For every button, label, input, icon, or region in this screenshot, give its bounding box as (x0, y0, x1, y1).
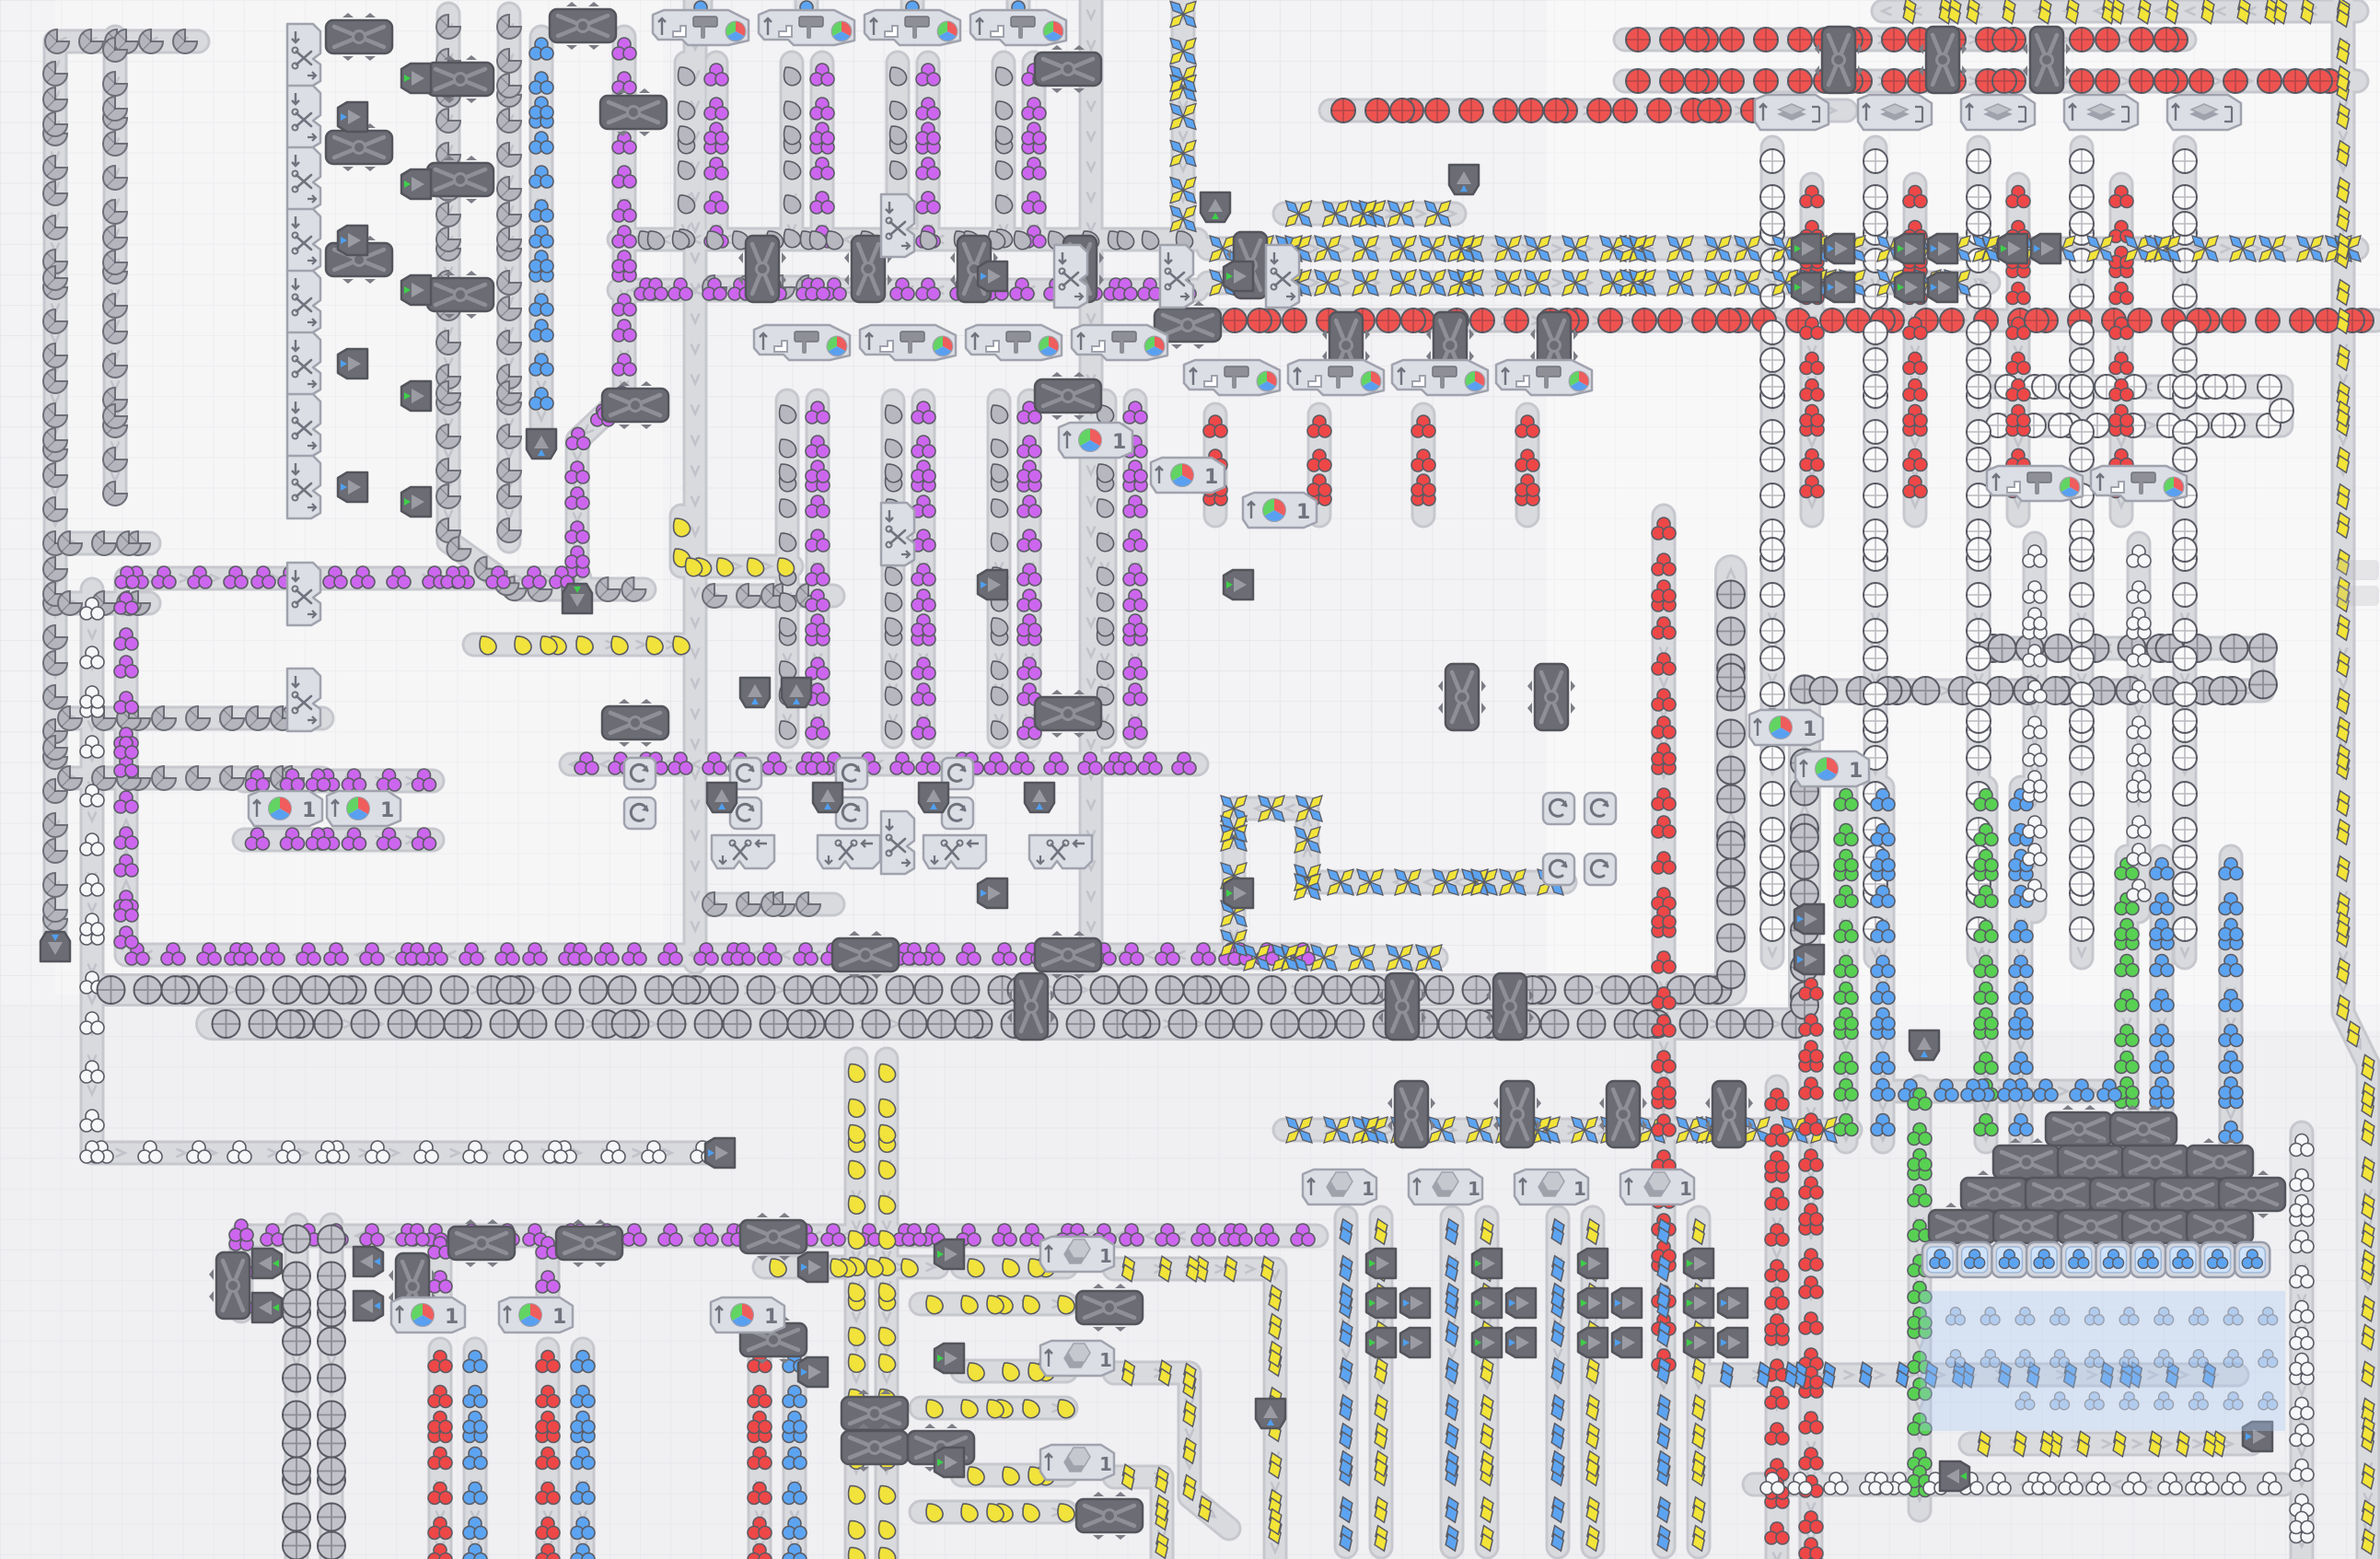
shape-item (2203, 375, 2227, 399)
factory-viewport[interactable]: 11 (0, 0, 2380, 1559)
cutter-building[interactable] (287, 456, 320, 518)
tunnel-building[interactable] (935, 1239, 964, 1269)
shape-item (1863, 320, 1887, 344)
stacker-building[interactable] (2167, 95, 2241, 130)
balancer-building[interactable] (326, 13, 392, 61)
balancer-building[interactable] (550, 2, 616, 50)
tunnel-building[interactable] (1506, 1328, 1536, 1357)
shape-item (1717, 961, 1745, 989)
cutter-building[interactable] (287, 86, 320, 148)
shape-item (1091, 976, 1119, 1004)
tunnel-building[interactable] (1825, 234, 1854, 263)
shape-item (2222, 308, 2246, 332)
balancer-building[interactable] (1438, 664, 1486, 730)
tunnel-building[interactable] (1684, 1249, 1713, 1278)
shape-item (283, 1365, 310, 1392)
cutter-building[interactable] (818, 835, 880, 868)
tunnel-building[interactable] (1224, 570, 1253, 599)
tunnel-building[interactable] (707, 783, 737, 812)
shape-item (283, 1402, 310, 1429)
shape-item (1788, 28, 1812, 52)
shape-item (1156, 976, 1184, 1004)
painter-building[interactable] (653, 10, 749, 45)
color-mixer-building[interactable] (499, 1297, 573, 1332)
tunnel-building[interactable] (1366, 1288, 1396, 1318)
shape-item (283, 1262, 310, 1290)
balancer-building[interactable] (1599, 1081, 1647, 1147)
shape-item (2173, 746, 2197, 770)
tunnel-building[interactable] (252, 1293, 282, 1322)
balancer-building[interactable] (1035, 931, 1101, 979)
shape-item (1222, 976, 1249, 1004)
stacker-building[interactable] (1040, 1341, 1114, 1376)
balancer-building[interactable] (1035, 372, 1101, 420)
painter-building[interactable] (860, 325, 956, 360)
painter-building[interactable] (1392, 360, 1488, 395)
shape-item (1967, 212, 1991, 236)
tunnel-building[interactable] (1794, 945, 1824, 974)
shape-item (2070, 185, 2094, 209)
tunnel-building[interactable] (935, 1448, 964, 1477)
cutter-building[interactable] (287, 147, 320, 210)
balancer-building[interactable] (1705, 1081, 1753, 1147)
shape-item (376, 976, 403, 1004)
tunnel-building[interactable] (1472, 1249, 1502, 1278)
tunnel-building[interactable] (1792, 234, 1821, 263)
shape-item (1169, 1010, 1197, 1038)
tunnel-building[interactable] (338, 226, 367, 255)
shape-item (695, 1010, 723, 1038)
cutter-building[interactable] (712, 835, 774, 868)
tunnel-building[interactable] (41, 932, 70, 961)
shape-item (1882, 69, 1906, 93)
tunnel-building[interactable] (1684, 1288, 1713, 1318)
shape-item (1324, 976, 1352, 1004)
shape-item (2173, 348, 2197, 372)
color-mixer-building[interactable] (711, 1297, 784, 1332)
shape-item (956, 1010, 983, 1038)
stacker-building[interactable] (1040, 1237, 1114, 1272)
balancer-building[interactable] (1815, 27, 1863, 93)
stacker-building[interactable] (1303, 1169, 1376, 1204)
shape-item (1337, 1010, 1364, 1038)
tunnel-building[interactable] (1612, 1328, 1642, 1357)
shape-item (1184, 976, 1212, 1004)
shape-item (2070, 69, 2094, 93)
rotator-building[interactable] (1543, 793, 1574, 824)
stacker-building[interactable] (1755, 95, 1829, 130)
tunnel-building[interactable] (1224, 878, 1253, 908)
tunnel-building[interactable] (1825, 273, 1854, 302)
tunnel-building[interactable] (1998, 234, 2027, 263)
balancer-building[interactable] (600, 88, 667, 136)
shape-item (497, 976, 525, 1004)
shape-item (417, 1010, 445, 1038)
balancer-building[interactable] (842, 1424, 908, 1472)
color-mixer-building[interactable] (1151, 458, 1225, 493)
balancer-building[interactable] (427, 271, 493, 319)
color-mixer-building[interactable] (249, 791, 322, 826)
shape-item (2070, 448, 2094, 471)
tunnel-building[interactable] (1025, 783, 1054, 812)
tunnel-building[interactable] (978, 570, 1007, 599)
shape-item (1660, 69, 1684, 93)
cutter-building[interactable] (287, 271, 320, 333)
tunnel-building[interactable] (1718, 1288, 1747, 1318)
shape-item (1967, 448, 1991, 471)
shape-item (404, 976, 432, 1004)
shape-item (2032, 375, 2056, 399)
tunnel-building[interactable] (935, 1344, 964, 1373)
balancer-building[interactable] (1486, 973, 1534, 1040)
color-mixer-building[interactable] (1059, 423, 1132, 458)
tunnel-building[interactable] (705, 1138, 735, 1168)
shape-item (1863, 348, 1887, 372)
shape-item (2070, 583, 2094, 607)
shape-item (134, 976, 162, 1004)
ghost-building (2331, 586, 2379, 606)
shape-item (1271, 1010, 1299, 1038)
balancer-building[interactable] (1378, 973, 1426, 1040)
painter-building[interactable] (759, 10, 854, 45)
balancer-building[interactable] (1493, 1081, 1541, 1147)
shape-item (1120, 976, 1147, 1004)
shape-item (788, 1010, 816, 1038)
painter-building[interactable] (966, 325, 1062, 360)
shape-item (1967, 149, 1991, 173)
tunnel-building[interactable] (919, 783, 948, 812)
color-mixer-building[interactable] (327, 791, 401, 826)
balancer-building[interactable] (556, 1219, 622, 1267)
tunnel-building[interactable] (354, 1291, 383, 1320)
shape-item (1717, 581, 1745, 609)
tunnel-building[interactable] (1578, 1328, 1608, 1357)
shape-item (2249, 671, 2277, 699)
painter-building[interactable] (1987, 466, 2083, 501)
shape-item (1439, 1010, 1467, 1038)
balancer-building[interactable] (209, 1252, 257, 1319)
shape-item (2070, 149, 2094, 173)
shape-item (1248, 308, 1271, 332)
balancer-building[interactable] (1919, 27, 1967, 93)
shape-item (1760, 320, 1784, 344)
tunnel-building[interactable] (401, 275, 431, 305)
tunnel-building[interactable] (338, 349, 367, 378)
tunnel-building[interactable] (563, 584, 592, 613)
tunnel-building[interactable] (527, 429, 556, 459)
shape-item (2154, 28, 2178, 52)
balancer-building[interactable] (1527, 664, 1575, 730)
tunnel-building[interactable] (1940, 1461, 1969, 1491)
shape-item (1863, 185, 1887, 209)
cutter-building[interactable] (287, 24, 320, 87)
tunnel-building[interactable] (813, 783, 842, 812)
tunnel-building[interactable] (978, 878, 1007, 908)
color-mixer-building[interactable] (1243, 493, 1317, 528)
rotator-building[interactable] (1585, 854, 1616, 885)
tunnel-building[interactable] (252, 1249, 282, 1278)
painter-building[interactable] (1072, 325, 1167, 360)
shape-item (748, 976, 775, 1004)
cutter-building[interactable] (287, 332, 320, 395)
balancer-building[interactable] (1035, 45, 1101, 93)
shape-item (724, 1010, 751, 1038)
shape-item (609, 976, 636, 1004)
tunnel-building[interactable] (401, 169, 431, 199)
shape-item (2173, 619, 2197, 643)
cutter-building[interactable] (923, 835, 986, 868)
rotator-building[interactable] (1585, 793, 1616, 824)
balancer-building[interactable] (602, 699, 668, 747)
tunnel-building[interactable] (1794, 904, 1824, 934)
shape-item (1054, 976, 1082, 1004)
painter-building[interactable] (1496, 360, 1592, 395)
tunnel-building[interactable] (1895, 234, 1924, 263)
shape-item (1283, 308, 1306, 332)
shape-item (302, 976, 330, 1004)
shape-item (1967, 709, 1991, 733)
shape-item (658, 1010, 686, 1038)
tunnel-building[interactable] (401, 381, 431, 411)
shape-item (162, 976, 190, 1004)
cutter-building[interactable] (287, 563, 320, 625)
tunnel-building[interactable] (1472, 1288, 1502, 1318)
tunnel-building[interactable] (1910, 1030, 1939, 1060)
shape-item (1746, 1010, 1773, 1038)
shape-item (2173, 818, 2197, 842)
shape-item (318, 1458, 345, 1485)
stacker-building[interactable] (1858, 95, 1932, 130)
shape-item (2173, 448, 2197, 471)
shape-item (1992, 69, 2016, 93)
shape-item (1760, 420, 1784, 444)
balancer-building[interactable] (1076, 1492, 1143, 1540)
color-mixer-building[interactable] (1749, 710, 1823, 745)
balancer-building[interactable] (740, 1213, 807, 1261)
stacker-building[interactable] (1040, 1445, 1114, 1480)
shape-item (1967, 285, 1991, 308)
shape-item (1863, 420, 1887, 444)
shape-item (1788, 69, 1812, 93)
shape-item (863, 1010, 890, 1038)
tunnel-building[interactable] (1612, 1288, 1642, 1318)
shape-item (1493, 99, 1517, 122)
tunnel-building[interactable] (1506, 1288, 1536, 1318)
shape-item (2130, 69, 2154, 93)
cutter-building[interactable] (287, 209, 320, 272)
shape-item (318, 1328, 345, 1355)
shape-item (2173, 320, 2197, 344)
tunnel-building[interactable] (1718, 1328, 1747, 1357)
tunnel-building[interactable] (1256, 1399, 1285, 1428)
shape-item (1206, 1010, 1234, 1038)
painter-building[interactable] (1184, 360, 1280, 395)
shape-item (1331, 99, 1355, 122)
shape-item (2212, 413, 2235, 437)
tunnel-building[interactable] (1578, 1249, 1608, 1278)
shape-item (1760, 646, 1784, 670)
balancer-building[interactable] (738, 236, 786, 302)
tunnel-building[interactable] (1684, 1328, 1713, 1357)
stacker-building[interactable] (1620, 1169, 1694, 1204)
cutter-building[interactable] (1266, 245, 1299, 308)
shape-item (1299, 1010, 1327, 1038)
balancer-building[interactable] (427, 55, 493, 103)
cutter-building[interactable] (287, 394, 320, 457)
shape-item (1760, 619, 1784, 643)
shape-item (1717, 1010, 1745, 1038)
shape-item (1587, 99, 1611, 122)
shape-item (1810, 677, 1838, 704)
painter-building[interactable] (2091, 466, 2187, 501)
shape-item (2070, 212, 2094, 236)
shape-item (441, 976, 469, 1004)
shape-item (250, 1010, 277, 1038)
shape-item (2096, 69, 2119, 93)
shape-item (1223, 308, 1247, 332)
shape-item (389, 1010, 416, 1038)
tunnel-building[interactable] (1928, 234, 1957, 263)
tunnel-building[interactable] (1449, 165, 1479, 194)
cutter-building[interactable] (1029, 835, 1092, 868)
color-mixer-building[interactable] (391, 1297, 465, 1332)
cutter-building[interactable] (881, 503, 914, 565)
shape-item (673, 976, 701, 1004)
balancer-building[interactable] (1007, 973, 1055, 1040)
shape-item (1754, 69, 1778, 93)
shape-item (98, 976, 125, 1004)
shape-item (1680, 1010, 1708, 1038)
cutter-building[interactable] (287, 669, 320, 731)
tunnel-building[interactable] (1578, 1288, 1608, 1318)
shape-item (1698, 99, 1722, 122)
stacker-building[interactable] (1409, 1169, 1482, 1204)
tunnel-building[interactable] (740, 678, 770, 707)
shape-item (1459, 99, 1483, 122)
balancer-building[interactable] (1035, 690, 1101, 738)
shape-item (556, 1010, 584, 1038)
shape-item (318, 1532, 345, 1559)
tunnel-building[interactable] (798, 1252, 828, 1282)
cutter-building[interactable] (881, 811, 914, 874)
painter-building[interactable] (970, 10, 1066, 45)
tunnel-building[interactable] (401, 64, 431, 93)
shape-item (330, 976, 357, 1004)
shape-item (1760, 149, 1784, 173)
balancer-building[interactable] (427, 156, 493, 204)
shape-item (2173, 185, 2197, 209)
balancer-building[interactable] (2023, 27, 2071, 93)
shape-item (2070, 782, 2094, 806)
tunnel-building[interactable] (1224, 262, 1253, 291)
balancer-building[interactable] (1076, 1284, 1143, 1332)
shape-item (283, 1226, 310, 1253)
tunnel-building[interactable] (338, 102, 367, 132)
shape-item (915, 976, 943, 1004)
shape-item (1390, 99, 1414, 122)
shape-item (2173, 212, 2197, 236)
shape-item (2070, 682, 2094, 706)
painter-building[interactable] (754, 325, 850, 360)
stacker-building[interactable] (1961, 95, 2035, 130)
shape-item (1967, 185, 1991, 209)
shape-item (1720, 28, 1744, 52)
rotator-building[interactable] (1543, 854, 1574, 885)
rotator-building[interactable] (624, 797, 656, 829)
tunnel-building[interactable] (338, 472, 367, 502)
shape-item (813, 976, 841, 1004)
shape-item (1067, 1010, 1095, 1038)
tunnel-building[interactable] (1400, 1288, 1430, 1318)
shape-item (1754, 28, 1778, 52)
tunnel-building[interactable] (1792, 273, 1821, 302)
shape-item (1626, 28, 1650, 52)
shape-item (2173, 682, 2197, 706)
tunnel-building[interactable] (401, 487, 431, 517)
cutter-building[interactable] (881, 194, 914, 257)
shape-item (1235, 1010, 1262, 1038)
shape-item (213, 1010, 240, 1038)
tunnel-building[interactable] (2031, 234, 2061, 263)
tunnel-building[interactable] (1366, 1328, 1396, 1357)
cutter-building[interactable] (1054, 245, 1087, 308)
balancer-building[interactable] (448, 1219, 515, 1267)
shape-item (900, 1010, 927, 1038)
shape-item (645, 976, 673, 1004)
balancer-building[interactable] (1387, 1081, 1435, 1147)
cutter-building[interactable] (1160, 245, 1193, 308)
rotator-building[interactable] (624, 758, 656, 789)
shape-item (1717, 664, 1745, 692)
tunnel-building[interactable] (1928, 273, 1957, 302)
tunnel-building[interactable] (1201, 192, 1230, 222)
shape-item (1882, 28, 1906, 52)
stacker-building[interactable] (2064, 95, 2138, 130)
shape-item (2070, 845, 2094, 869)
shape-item (1295, 976, 1323, 1004)
shape-item (2070, 709, 2094, 733)
tunnel-building[interactable] (782, 678, 811, 707)
tunnel-building[interactable] (798, 1357, 828, 1387)
shape-item (2249, 634, 2277, 662)
stacker-building[interactable] (1515, 1169, 1588, 1204)
shape-item (1863, 682, 1887, 706)
shape-item (1863, 212, 1887, 236)
shape-item (318, 1226, 345, 1253)
tunnel-building[interactable] (354, 1247, 383, 1276)
shape-item (1578, 1010, 1606, 1038)
painter-building[interactable] (865, 10, 960, 45)
tunnel-building[interactable] (1472, 1328, 1502, 1357)
shape-item (2210, 677, 2237, 704)
shape-item (1760, 917, 1784, 941)
color-mixer-building[interactable] (1795, 751, 1869, 786)
tunnel-building[interactable] (1366, 1249, 1396, 1278)
tunnel-building[interactable] (1895, 273, 1924, 302)
shape-item (1365, 99, 1389, 122)
shape-item (318, 1290, 345, 1318)
shape-item (273, 976, 301, 1004)
painter-building[interactable] (1288, 360, 1384, 395)
balancer-building[interactable] (602, 381, 668, 429)
shape-item (1760, 538, 1784, 562)
shape-item (1504, 308, 1528, 332)
shape-item (318, 1262, 345, 1290)
shape-item (315, 1010, 342, 1038)
tunnel-building[interactable] (978, 262, 1007, 291)
balancer-building[interactable] (832, 931, 899, 979)
tunnel-building[interactable] (1400, 1328, 1430, 1357)
